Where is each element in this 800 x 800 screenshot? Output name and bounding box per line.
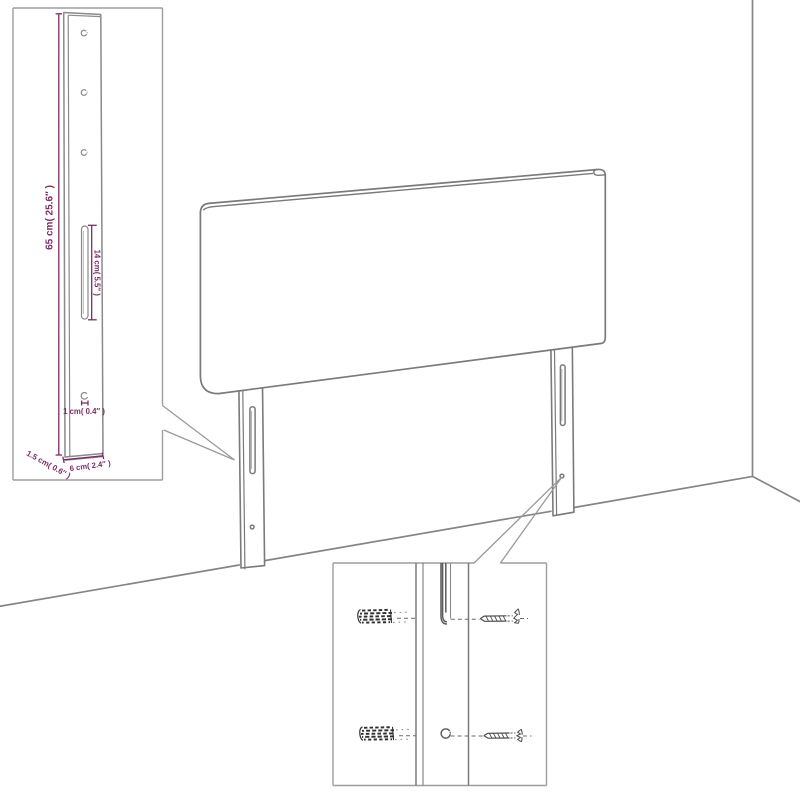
svg-text:14 cm( 5.5″ ): 14 cm( 5.5″ ) (93, 250, 102, 297)
svg-text:65 cm( 25.6″ ): 65 cm( 25.6″ ) (45, 185, 56, 250)
svg-text:1 cm( 0.4″ ): 1 cm( 0.4″ ) (63, 407, 105, 416)
